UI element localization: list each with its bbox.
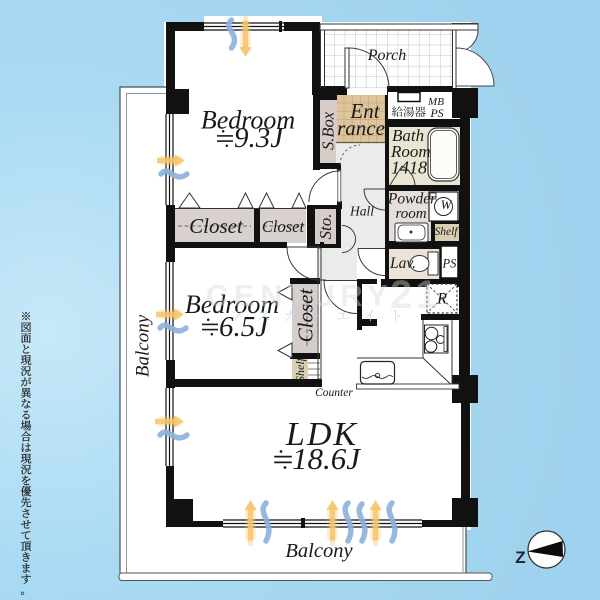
svg-text:Hall: Hall xyxy=(349,204,374,219)
svg-text:CENTURY: CENTURY xyxy=(206,278,393,313)
svg-text:PS: PS xyxy=(442,257,458,271)
svg-text:Balcony: Balcony xyxy=(133,314,154,377)
svg-text:W: W xyxy=(441,197,453,212)
svg-text:21: 21 xyxy=(390,273,441,317)
svg-text:Shelf: Shelf xyxy=(293,356,307,382)
svg-text:Closet: Closet xyxy=(189,214,244,238)
svg-text:Porch: Porch xyxy=(367,47,407,64)
svg-text:room: room xyxy=(395,206,426,222)
svg-text:Balcony: Balcony xyxy=(285,540,353,562)
svg-text:18.6J: 18.6J xyxy=(292,441,361,476)
svg-text:rance: rance xyxy=(337,116,385,140)
svg-text:Sto.: Sto. xyxy=(316,214,335,240)
svg-text:Powder: Powder xyxy=(387,191,437,208)
svg-text:PS: PS xyxy=(429,106,443,120)
svg-text:Shelf: Shelf xyxy=(435,226,460,238)
svg-text:Closet: Closet xyxy=(262,217,305,236)
svg-text:6.5J: 6.5J xyxy=(219,311,269,343)
svg-text:Lav.: Lav. xyxy=(389,255,416,272)
svg-text:Counter: Counter xyxy=(315,387,353,399)
svg-text:S.Box: S.Box xyxy=(319,111,338,150)
svg-text:1418: 1418 xyxy=(391,158,427,178)
svg-text:9.3J: 9.3J xyxy=(234,122,284,154)
svg-text:Z: Z xyxy=(515,548,525,567)
